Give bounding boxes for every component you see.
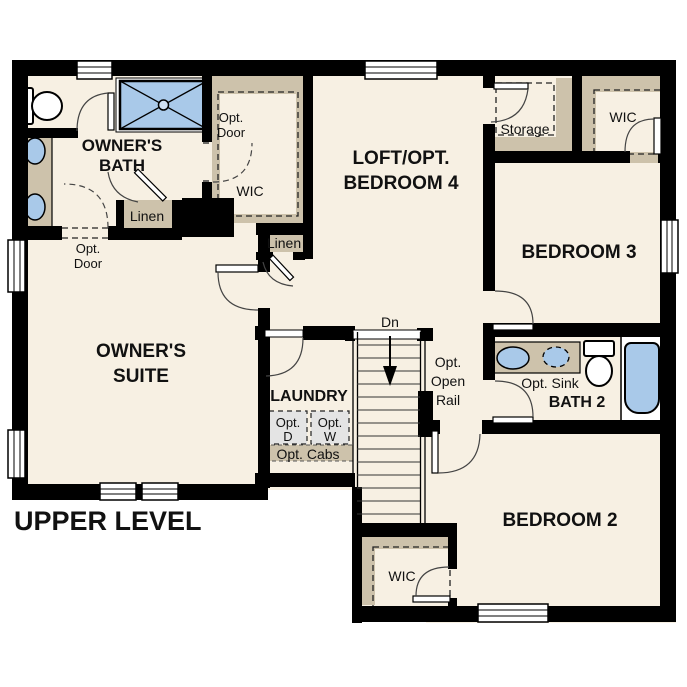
floor-title: UPPER LEVEL xyxy=(14,506,202,536)
opt-dryer-label: D xyxy=(283,429,292,444)
bathtub-icon xyxy=(621,337,661,420)
sink-icon xyxy=(497,347,529,369)
opt-dryer-label: Opt. xyxy=(276,415,301,430)
opt-open-rail-label: Rail xyxy=(436,392,460,408)
opt-door-wic-label: Door xyxy=(217,125,246,140)
loft-label: LOFT/OPT. xyxy=(352,148,449,169)
window-icon xyxy=(365,61,437,79)
toilet-icon xyxy=(584,341,614,386)
bedroom2-wic-label: WIC xyxy=(388,568,415,584)
opt-door-suite-label: Door xyxy=(74,256,103,271)
window-icon xyxy=(77,61,112,79)
opt-door-suite-label: Opt. xyxy=(76,241,101,256)
opt-open-rail-label: Opt. xyxy=(435,354,461,370)
loft-label: BEDROOM 4 xyxy=(343,173,459,194)
opt-washer-label: W xyxy=(324,429,337,444)
opt-washer-label: Opt. xyxy=(318,415,343,430)
owners-suite-label: SUITE xyxy=(113,366,169,387)
laundry-label: LAUNDRY xyxy=(270,388,348,405)
opt-sink-label: Opt. Sink xyxy=(521,375,580,391)
linen-hall-label: Linen xyxy=(267,235,301,251)
window-icon xyxy=(661,220,678,273)
window-icon xyxy=(100,483,136,500)
opt-door-wic-label: Opt. xyxy=(219,110,244,125)
owners-suite-label: OWNER'S xyxy=(96,341,186,362)
linen-bath-label: Linen xyxy=(130,208,164,224)
bath2-label: BATH 2 xyxy=(549,394,606,411)
bedroom3-wic-label: WIC xyxy=(609,109,636,125)
storage-label: Storage xyxy=(500,121,549,137)
owners-wic-label: WIC xyxy=(236,183,263,199)
owners-bath-label: BATH xyxy=(99,156,145,175)
shower-icon xyxy=(116,78,211,132)
bedroom2-label: BEDROOM 2 xyxy=(502,510,617,531)
floor-plan: OWNER'S BATH OWNER'S SUITE LOFT/OPT. BED… xyxy=(0,0,687,687)
window-icon xyxy=(8,240,25,292)
floor-plan-svg: OWNER'S BATH OWNER'S SUITE LOFT/OPT. BED… xyxy=(0,0,687,687)
window-icon xyxy=(8,430,25,478)
opt-cabs-label: Opt. Cabs xyxy=(276,446,339,462)
owners-bath-label: OWNER'S xyxy=(82,136,163,155)
opt-open-rail-label: Open xyxy=(431,373,465,389)
window-icon xyxy=(478,604,548,622)
opt-sink-icon xyxy=(543,347,569,367)
window-icon xyxy=(142,483,178,500)
bedroom3-label: BEDROOM 3 xyxy=(521,242,636,263)
stair-dn-label: Dn xyxy=(381,314,399,330)
